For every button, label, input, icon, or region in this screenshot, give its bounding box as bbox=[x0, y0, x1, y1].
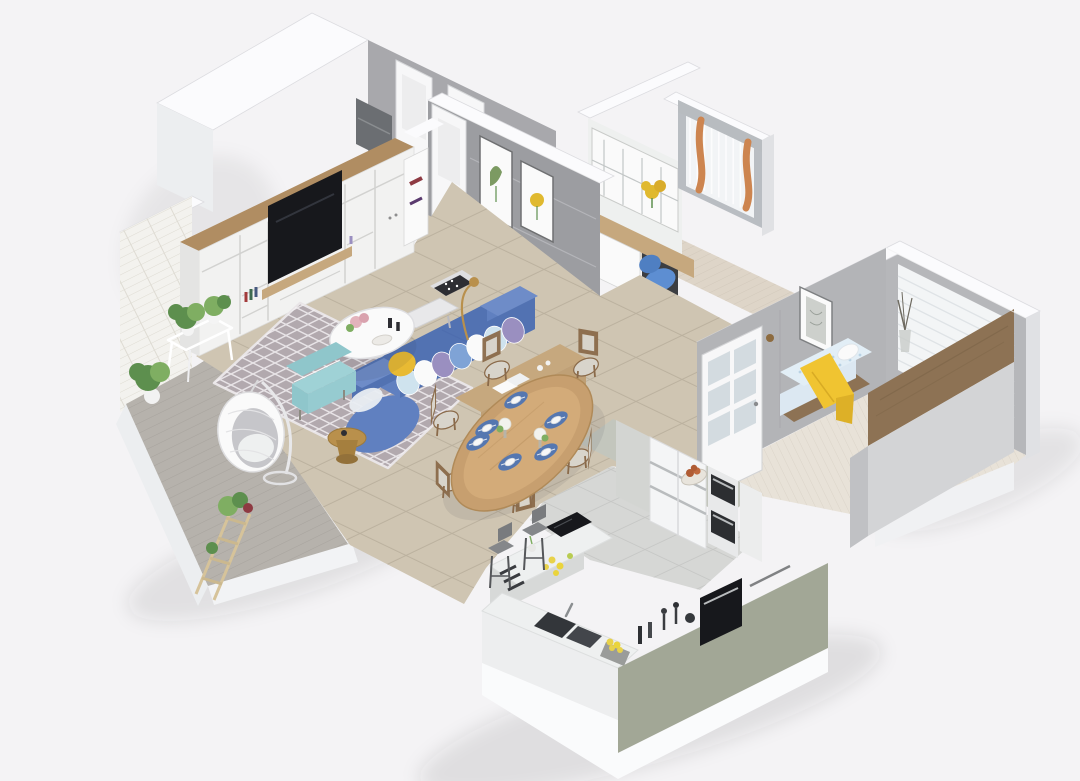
floorplan-render bbox=[0, 0, 1080, 781]
daybed-yellow-blanket-drape bbox=[836, 394, 854, 424]
dining-chair-e-leg bbox=[568, 462, 569, 474]
lounge-cushion-dot bbox=[448, 288, 450, 290]
utensil-pot bbox=[685, 613, 695, 623]
dining-chair-s-leg bbox=[530, 495, 531, 507]
dining-chair-ne-leg bbox=[594, 365, 595, 377]
wardrobe-end-cap bbox=[850, 446, 868, 548]
lounge-cushion-dot bbox=[451, 280, 453, 282]
kitchen-faucet bbox=[566, 604, 572, 616]
basket-lemon bbox=[609, 645, 615, 651]
study-drape-orange-right bbox=[746, 142, 749, 208]
gold-side-table-base bbox=[336, 454, 358, 464]
hood-bar bbox=[750, 566, 790, 586]
bar-lime bbox=[567, 553, 573, 559]
console-candle bbox=[537, 365, 543, 371]
lounge-cushion-dot bbox=[456, 285, 458, 287]
study-outer-wall-band bbox=[762, 134, 774, 236]
arc-floor-lamp-head bbox=[469, 277, 479, 287]
branch-vase-glass bbox=[899, 330, 911, 352]
fern-plant bbox=[217, 295, 231, 309]
study-drape-orange-left bbox=[699, 120, 702, 190]
kitchen-right-cabinet bbox=[740, 482, 762, 562]
bar-lemon bbox=[553, 570, 559, 576]
living-hall-door-panel bbox=[438, 118, 460, 186]
study-flowers-yellow bbox=[641, 181, 651, 191]
basket-lemon bbox=[607, 639, 614, 646]
daybed-tuft bbox=[859, 354, 862, 357]
utensil-head bbox=[661, 608, 667, 614]
dining-chair-n-leg bbox=[505, 368, 506, 380]
scene-svg bbox=[0, 0, 1080, 781]
ladder-plant-berry bbox=[243, 503, 253, 513]
bar-deco-vase bbox=[528, 544, 536, 552]
bedroom-wall-hook bbox=[766, 334, 774, 342]
corner-bookcase bbox=[404, 148, 428, 246]
fern-plant bbox=[168, 304, 184, 320]
flower-centerpiece-green bbox=[497, 426, 504, 433]
lounge-cushion-dot bbox=[445, 283, 447, 285]
ladder-plant-low bbox=[206, 542, 218, 554]
flower-centerpiece-green bbox=[542, 435, 549, 442]
console-candle bbox=[546, 361, 551, 366]
bar-deco-flower bbox=[530, 536, 532, 544]
bedroom-east-outer-band bbox=[1026, 311, 1040, 459]
basket-lemon bbox=[617, 647, 623, 653]
french-door-handle bbox=[754, 402, 758, 406]
gold-table-item bbox=[341, 430, 347, 436]
daybed-tuft bbox=[799, 371, 802, 374]
entry-outer-wall-top bbox=[157, 13, 368, 130]
floor-fern bbox=[129, 363, 147, 381]
study-flowers-yellow bbox=[654, 180, 666, 192]
fern-plant bbox=[187, 303, 205, 321]
utensil-head bbox=[673, 602, 679, 608]
dining-chair-n-leg bbox=[488, 374, 489, 386]
bar-lemon bbox=[557, 563, 564, 570]
dining-chair-w-leg bbox=[454, 418, 455, 430]
fruit-bowl-fruit bbox=[691, 465, 697, 471]
dining-chair-w-leg bbox=[437, 424, 438, 436]
coffee-table-flowers-green bbox=[346, 324, 354, 332]
tv-unit-handle bbox=[389, 217, 392, 220]
botanical-print-art-yellow bbox=[530, 193, 544, 207]
coffee-table-flowers-pink bbox=[359, 313, 369, 323]
tv-unit-end-cap bbox=[180, 242, 199, 356]
daybed-tuft bbox=[839, 364, 842, 367]
floor-fern bbox=[150, 362, 170, 382]
dining-chair-ne-back-panel bbox=[582, 334, 594, 351]
dining-chair-sw-leg bbox=[443, 486, 444, 498]
dining-chair-e-leg bbox=[585, 456, 586, 468]
tv-unit-handle bbox=[395, 214, 398, 217]
bar-lemon bbox=[549, 557, 556, 564]
